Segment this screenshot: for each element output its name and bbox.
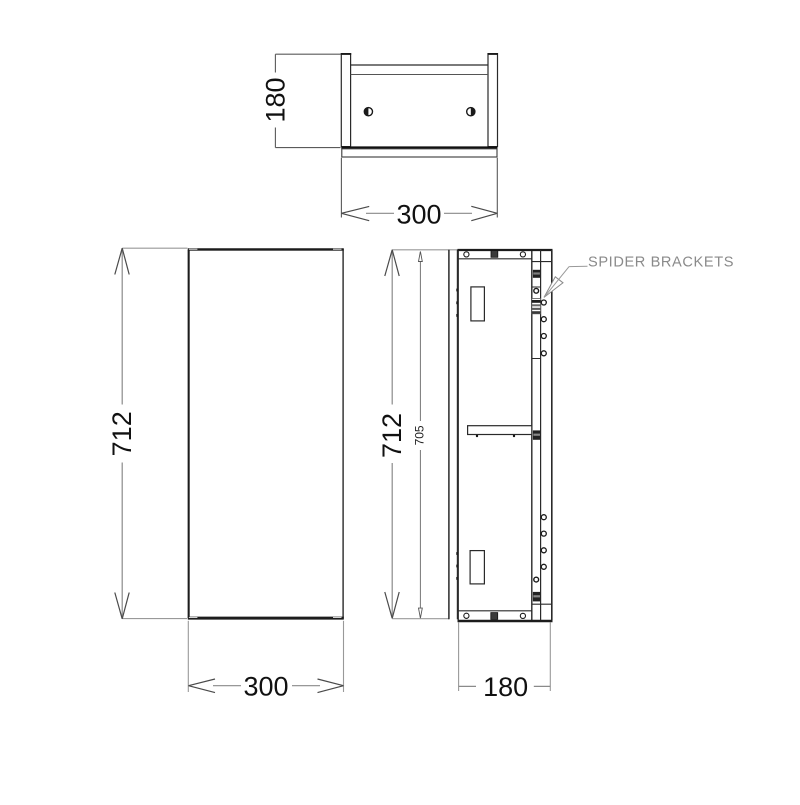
svg-text:712: 712 <box>377 413 407 458</box>
svg-text:705: 705 <box>413 425 427 445</box>
svg-text:300: 300 <box>243 672 288 702</box>
svg-text:300: 300 <box>396 199 441 229</box>
svg-text:180: 180 <box>260 77 290 122</box>
svg-text:712: 712 <box>107 411 137 456</box>
svg-text:180: 180 <box>483 672 528 702</box>
svg-text:SPIDER BRACKETS: SPIDER BRACKETS <box>588 254 734 270</box>
